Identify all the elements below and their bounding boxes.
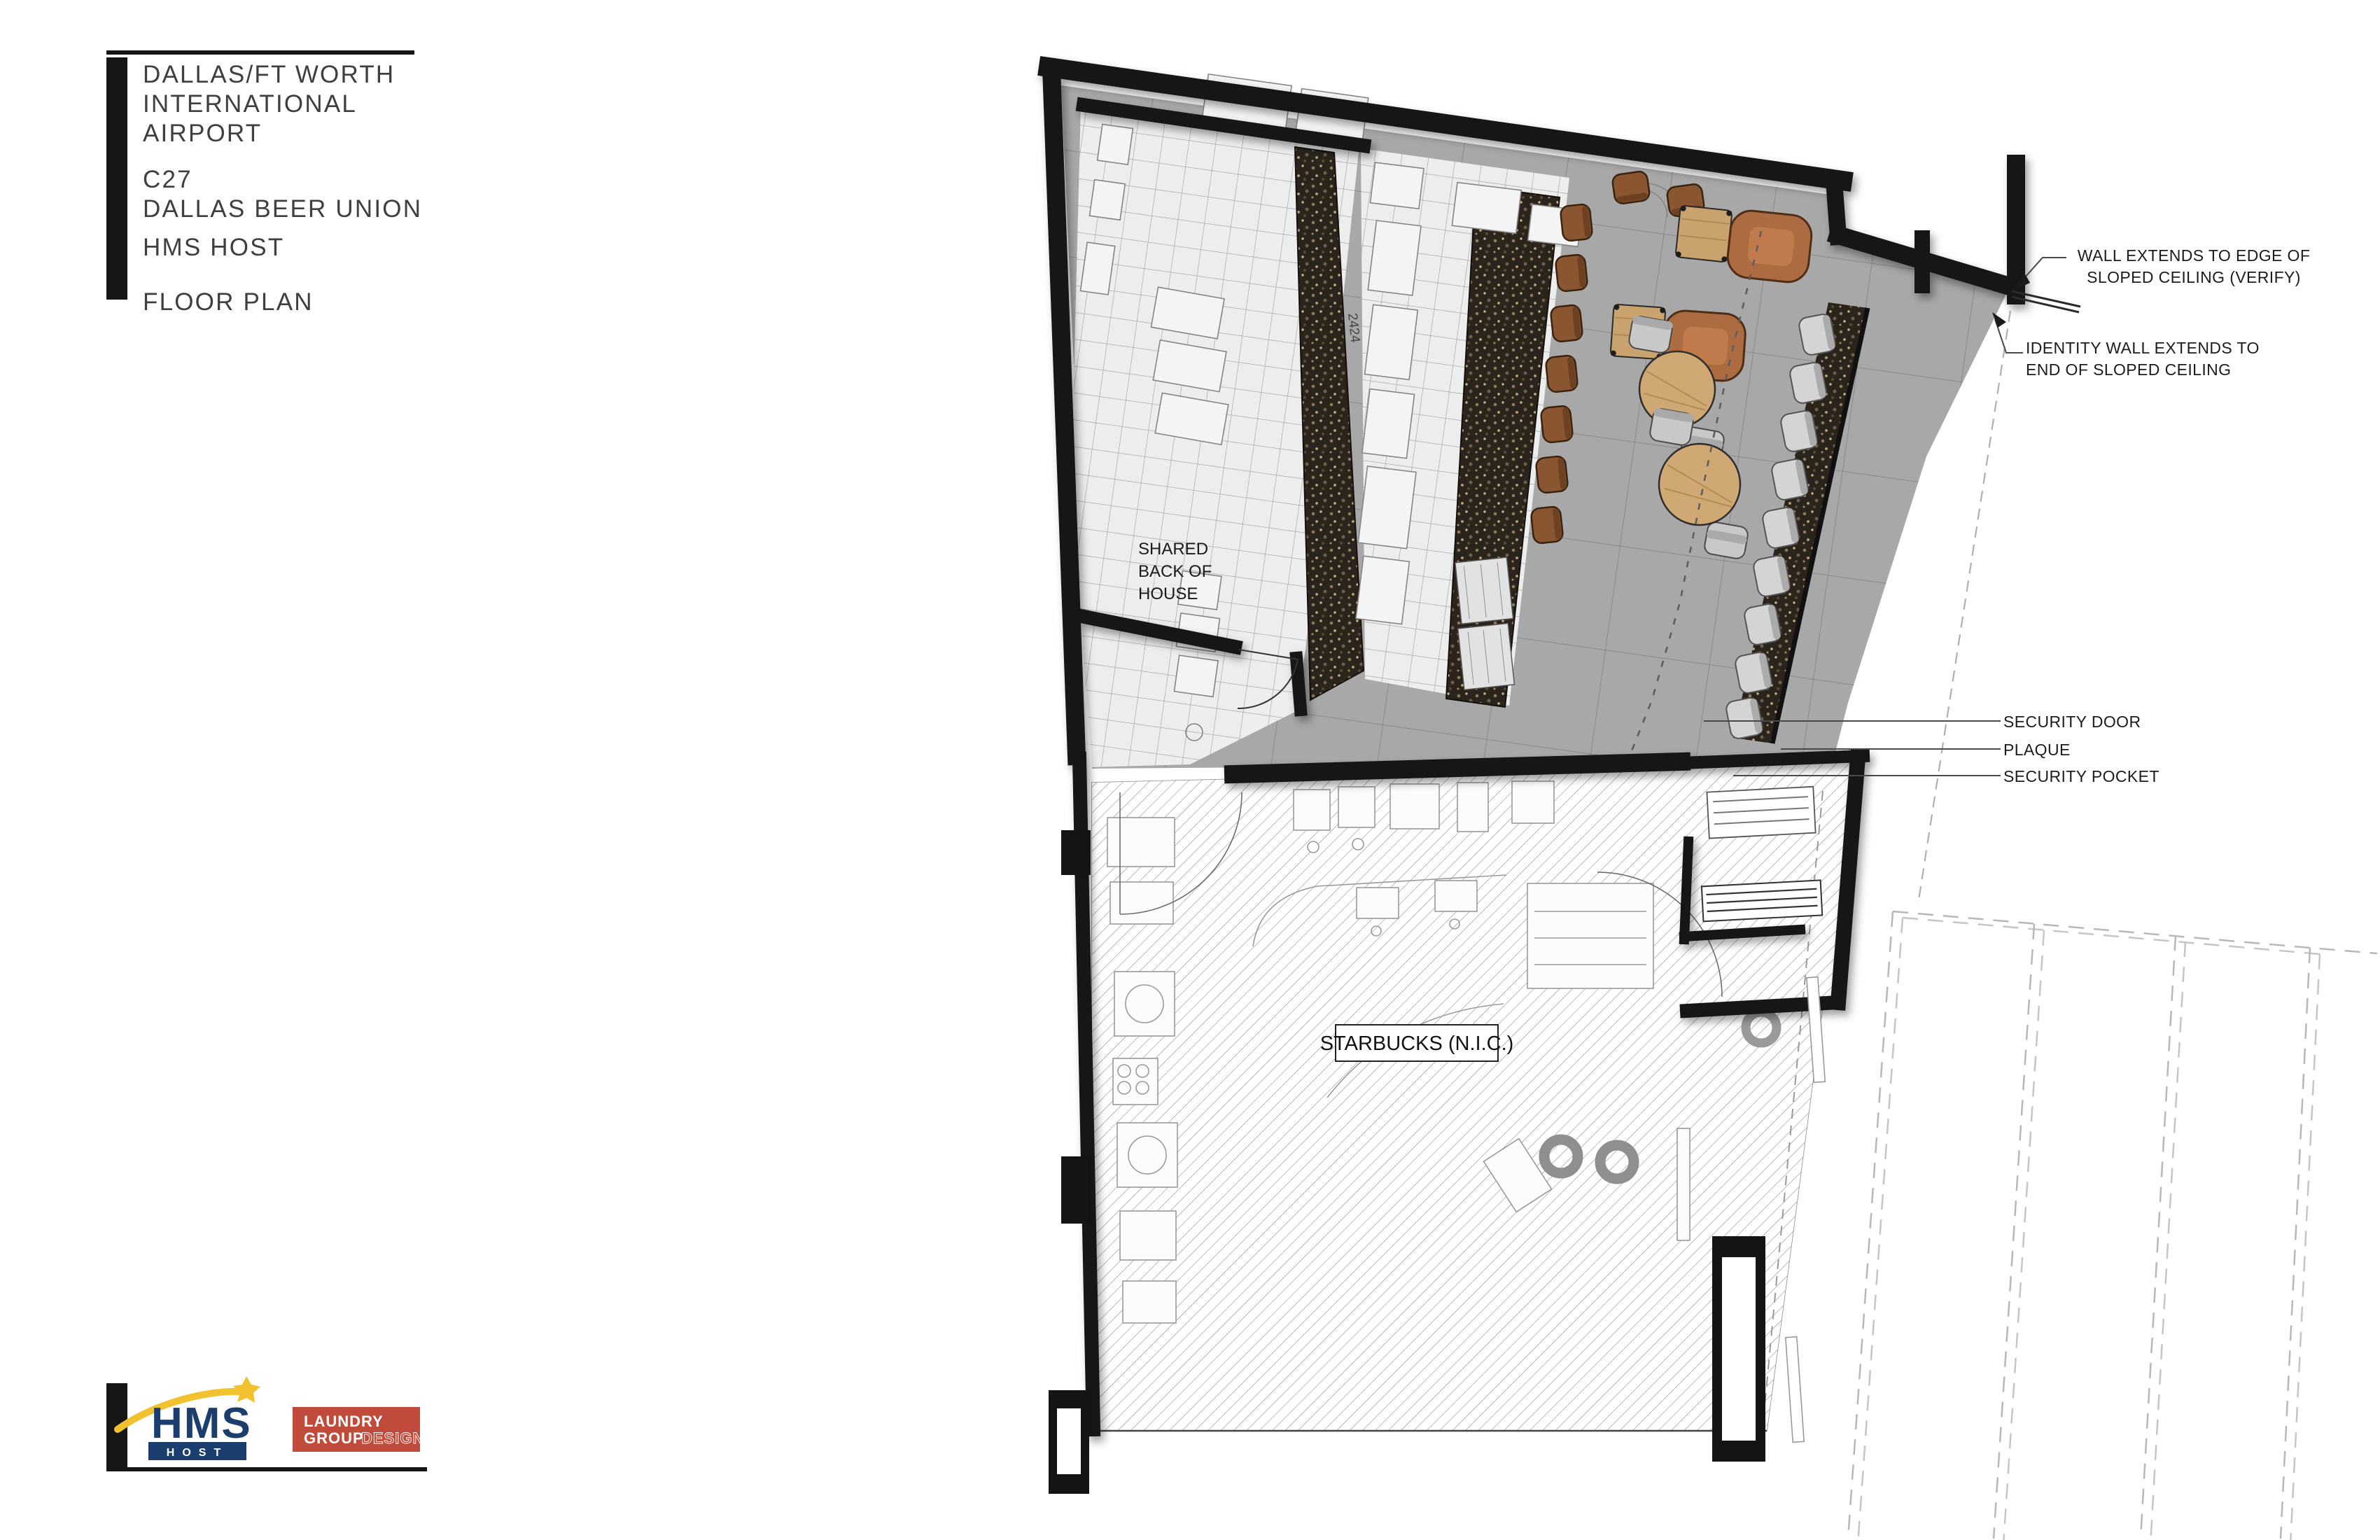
laundry-group-design-logo: LAUNDRY GROUP DESIGN bbox=[293, 1407, 424, 1452]
laundry-line2: GROUP bbox=[304, 1429, 364, 1447]
annotation-plaque: PLAQUE bbox=[2003, 739, 2071, 761]
laundry-line1: LAUNDRY bbox=[304, 1413, 384, 1430]
footer-logos: HMS HOST LAUNDRY GROUP DESIGN bbox=[0, 1365, 490, 1533]
hms-sub-wordmark: HOST bbox=[167, 1447, 228, 1459]
hms-wordmark: HMS bbox=[151, 1399, 252, 1448]
floor-plan-sheet: { "title_block": { "project": ["DALLAS/F… bbox=[0, 0, 2380, 1540]
security-bench bbox=[1702, 880, 1822, 921]
annotation-security-pocket: SECURITY POCKET bbox=[2003, 766, 2159, 787]
equipment-tag: 2424 bbox=[1345, 312, 1362, 344]
starbucks-label: STARBUCKS (N.I.C.) bbox=[1320, 1032, 1514, 1055]
lease-line-outline bbox=[1848, 911, 2377, 1540]
annotation-security-door: SECURITY DOOR bbox=[2003, 711, 2141, 733]
laundry-line3: DESIGN bbox=[361, 1429, 424, 1447]
annotation-wall-extends: WALL EXTENDS TO EDGE OF SLOPED CEILING (… bbox=[2071, 245, 2317, 288]
plaque-millwork bbox=[1707, 787, 1815, 839]
lounge-table bbox=[1675, 205, 1732, 262]
svg-text:BACK OF: BACK OF bbox=[1138, 562, 1212, 581]
svg-text:SHARED: SHARED bbox=[1138, 540, 1208, 559]
hms-host-logo: HMS HOST bbox=[118, 1376, 260, 1460]
lounge-chair bbox=[1725, 209, 1813, 284]
svg-text:HOUSE: HOUSE bbox=[1138, 584, 1198, 603]
annotation-identity-wall: IDENTITY WALL EXTENDS TO END OF SLOPED C… bbox=[2026, 337, 2260, 381]
